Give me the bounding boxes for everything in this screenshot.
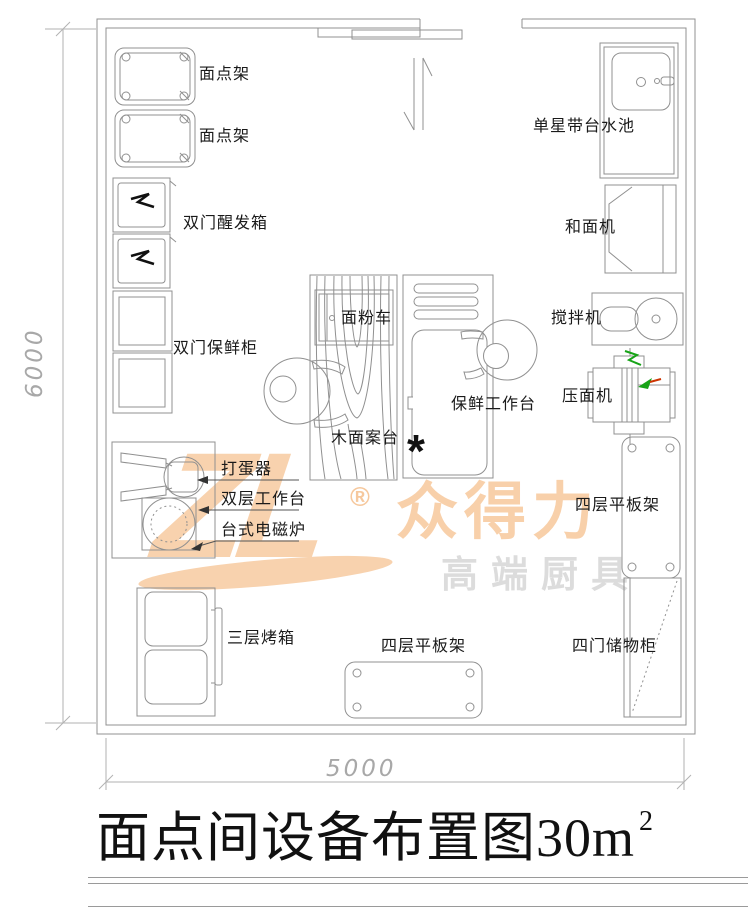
label-sink: 单星带台水池 — [533, 118, 635, 136]
dimension-height: 6000 — [24, 327, 47, 398]
dimension-lines — [45, 22, 691, 790]
dimension-width: 5000 — [326, 758, 397, 781]
title-text: 面点间设备布置图 — [96, 808, 536, 868]
label-mixer: 搅拌机 — [551, 310, 602, 328]
wood-table-shape — [310, 275, 397, 480]
label-egg-beater: 打蛋器 — [221, 461, 272, 479]
chef-left-shape — [264, 358, 348, 427]
fresh-cabinet-shape — [113, 291, 172, 413]
label-oven: 三层烤箱 — [227, 630, 295, 648]
label-storage-cabinet: 四门储物柜 — [572, 638, 657, 656]
label-dough-mixer: 和面机 — [565, 219, 616, 237]
pastry-rack-2-shape — [115, 110, 195, 167]
induction-cooker-shape — [142, 498, 196, 550]
label-fresh-worktable: 保鲜工作台 — [451, 396, 536, 414]
label-flat-rack-right: 四层平板架 — [575, 497, 660, 515]
flat-rack-bottom-shape — [345, 662, 482, 718]
pastry-rack-1-shape — [115, 48, 195, 105]
door-marks — [404, 58, 432, 130]
title-rule-1 — [88, 877, 748, 878]
floor-plan-canvas: ZL ® 众得力 高端厨具 — [0, 0, 750, 913]
egg-beater-shape — [121, 453, 204, 501]
asterisk-marker: * — [407, 428, 425, 474]
mixer-shape — [592, 293, 683, 345]
label-induction-cooker: 台式电磁炉 — [221, 522, 306, 540]
drawing-title: 面点间设备布置图30m2 — [96, 806, 654, 869]
title-area-value: 30m — [536, 808, 635, 868]
label-proofing-box: 双门醒发箱 — [183, 215, 268, 233]
label-dough-press: 压面机 — [562, 388, 613, 406]
sink-shape — [600, 43, 678, 178]
label-flour-cart: 面粉车 — [341, 310, 392, 328]
label-wood-table: 木面案台 — [331, 430, 399, 448]
title-rule-2 — [88, 883, 748, 884]
label-pastry-rack-1: 面点架 — [199, 66, 250, 84]
label-fresh-cabinet: 双门保鲜柜 — [173, 340, 258, 358]
chef-right-shape — [461, 320, 537, 380]
label-pastry-rack-2: 面点架 — [199, 128, 250, 146]
label-flat-rack-bottom: 四层平板架 — [381, 638, 466, 656]
oven-shape — [137, 588, 222, 716]
title-area-superscript: 2 — [639, 806, 654, 837]
title-rule-3 — [88, 906, 748, 907]
leader-lines — [191, 476, 299, 551]
label-double-worktable: 双层工作台 — [221, 491, 306, 509]
proofing-box-shape — [113, 178, 176, 288]
